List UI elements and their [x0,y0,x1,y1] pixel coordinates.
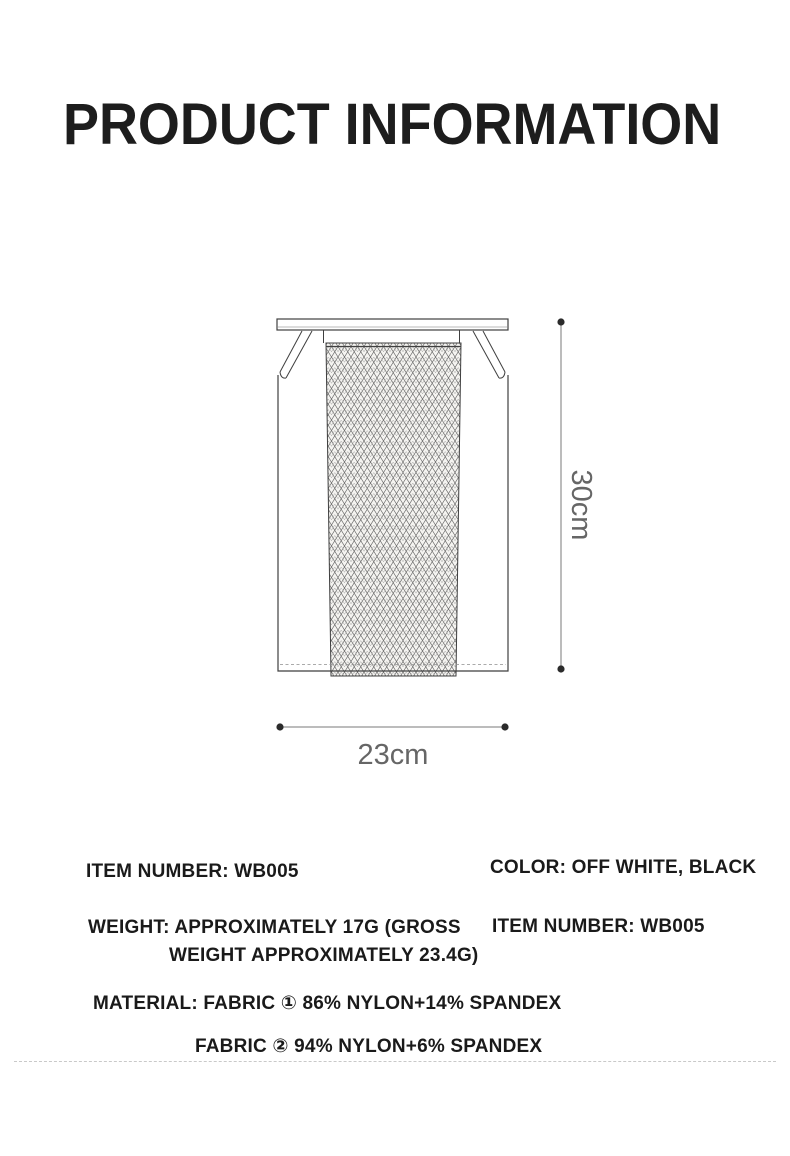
spec-item-number-left: ITEM NUMBER: WB005 [86,861,299,883]
product-information-page: PRODUCT INFORMATION [0,0,790,1156]
width-dimension-label: 23cm [358,739,429,771]
height-dimension-bottom-dot [557,665,564,672]
spec-weight: WEIGHT: APPROXIMATELY 17G (GROSS WEIGHT … [88,914,478,970]
page-title: PRODUCT INFORMATION [63,96,721,154]
right-strap [473,331,505,378]
spec-material-fabric1: MATERIAL: FABRIC ① 86% NYLON+14% SPANDEX [93,993,561,1015]
height-dimension-top-dot [557,318,564,325]
waistband-neck [324,330,460,343]
height-dimension-label: 30cm [565,470,597,541]
width-dimension-right-dot [501,723,508,730]
product-diagram: 30cm 23cm [240,295,620,790]
left-strap [280,331,312,378]
spec-weight-line2: WEIGHT APPROXIMATELY 23.4G) [88,942,478,970]
width-dimension: 23cm [276,723,508,771]
spec-weight-line1: WEIGHT: APPROXIMATELY 17G (GROSS [88,917,461,938]
waistband-top-bar [277,319,508,330]
spec-item-number-right: ITEM NUMBER: WB005 [492,916,705,938]
mesh-panel [326,343,461,676]
dashed-divider [14,1061,776,1062]
spec-material-fabric2: FABRIC ② 94% NYLON+6% SPANDEX [195,1036,542,1058]
height-dimension: 30cm [557,318,597,672]
width-dimension-left-dot [276,723,283,730]
spec-color: COLOR: OFF WHITE, BLACK [490,857,756,879]
